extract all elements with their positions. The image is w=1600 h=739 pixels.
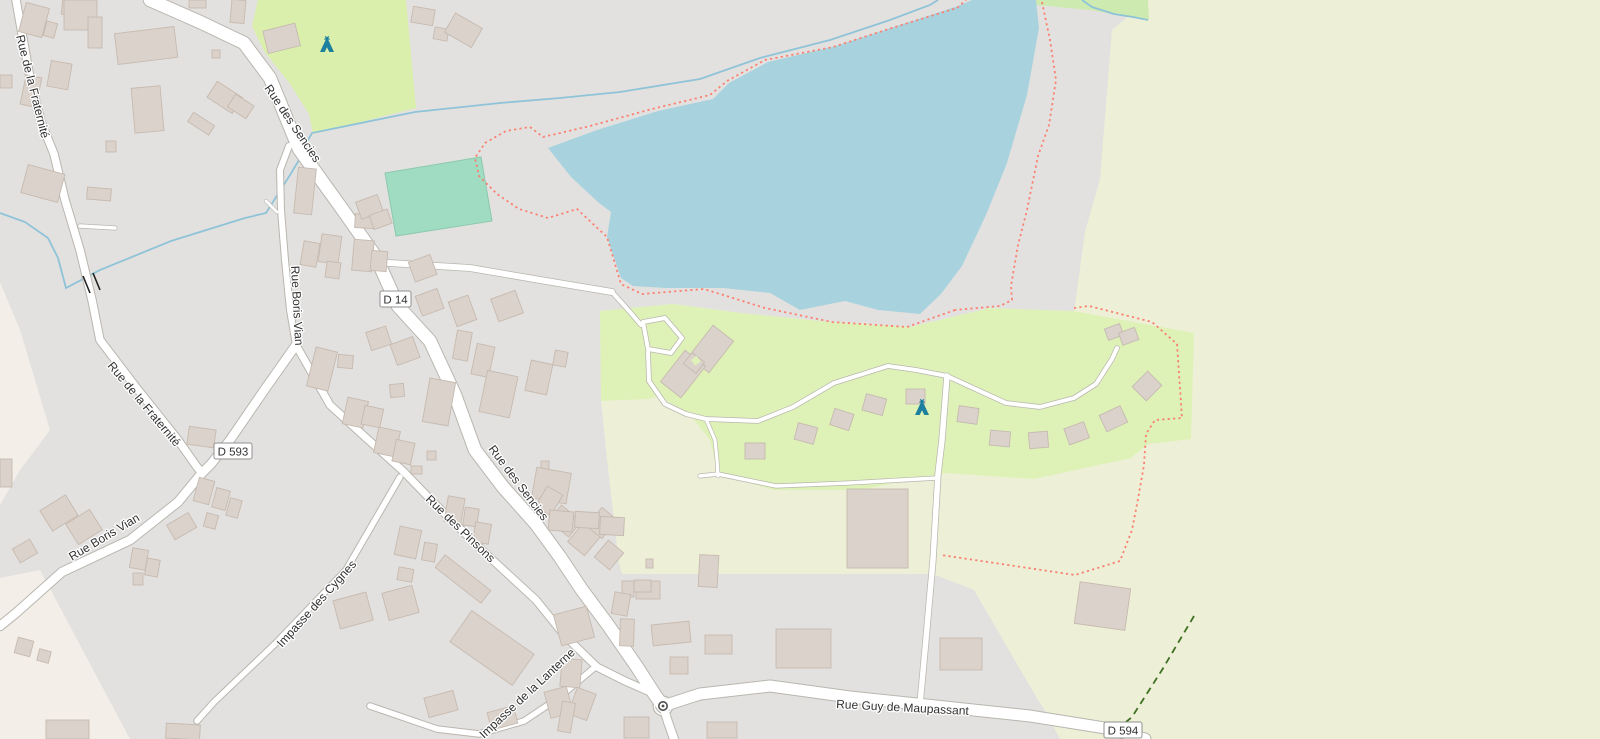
svg-text:D 594: D 594	[1108, 725, 1139, 737]
svg-text:D 593: D 593	[218, 446, 249, 458]
svg-text:D 14: D 14	[383, 294, 408, 306]
